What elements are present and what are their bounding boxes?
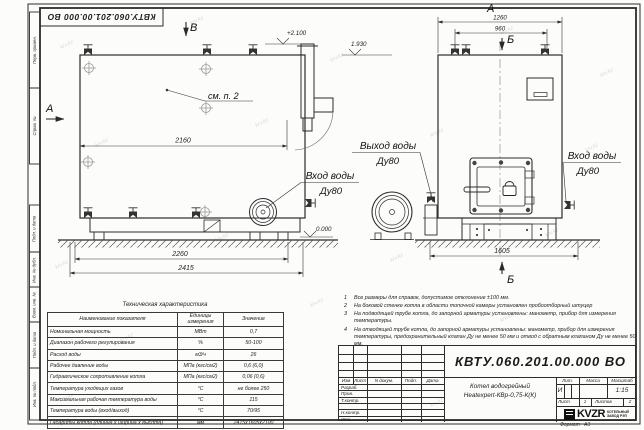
cell: 0,6 (6,0) [224, 360, 284, 371]
cell: 0,7 [224, 327, 284, 338]
elev-1930 [342, 49, 392, 55]
ground-hatch [58, 240, 338, 248]
chimney-elbow [295, 44, 333, 150]
front-inlet-label: Вход воды [568, 151, 617, 162]
margin-label: Инв. № дубл. [30, 252, 40, 287]
cell: Температура воды (вход/выход) [48, 406, 178, 417]
tech-table-title: Техническая характеристика [47, 302, 283, 308]
margin-label: Подп. и дата [30, 205, 40, 252]
scale-label: Масштаб [607, 378, 637, 383]
note-item: 2На боковой стенке котла в области топоч… [344, 303, 636, 310]
section-b2-label-top: Б [507, 34, 514, 46]
center-mark-icon [199, 62, 213, 76]
col-list: Лист [353, 378, 367, 383]
dim-1260-label: 1260 [493, 15, 507, 22]
cell: Номинальная мощность [48, 327, 178, 338]
center-mark-icon [81, 155, 95, 169]
margin-label: Справ. № [30, 88, 40, 164]
valve-icon [305, 199, 315, 208]
tech-table-header-row: Наименование показателя Единицы измерени… [48, 313, 284, 327]
note-number: 1 [344, 295, 354, 302]
table-row: Максимальная рабочая температура воды°С1… [48, 394, 284, 405]
table-row: Номинальная мощностьМВт0,7 [48, 327, 284, 338]
note-text: На подводящей трубе котла, до запорной а… [354, 311, 636, 325]
cell: °С [178, 406, 224, 417]
table-row: Гидравлическое сопротивление котлаМПа (к… [48, 372, 284, 383]
valve-icon [129, 208, 138, 218]
format-note: Формат А3 [560, 422, 590, 428]
row-prov: Пров. [341, 391, 353, 396]
margin-label: Инв. № подл. [30, 368, 40, 420]
door-bolts [472, 160, 530, 212]
cell: Максимальная рабочая температура воды [48, 394, 178, 405]
table-row: Температура уходящих газов°Сне более 250 [48, 383, 284, 394]
valve-icon [192, 208, 201, 218]
valve-icon [541, 45, 550, 55]
tech-header-units: Единицы измерения [178, 313, 224, 327]
ground-hatch [415, 240, 600, 248]
table-row: Температура воды (вход/выход)°С70/95 [48, 406, 284, 417]
dim-2260-label: 2260 [171, 251, 188, 258]
notes-block: 1Все размеры для справок, допустимое отк… [344, 295, 636, 349]
col-podp: Подп. [401, 378, 421, 383]
title-block: КВТУ.060.201.00.000 ВО Изм Лист N докум.… [338, 345, 636, 421]
note-item: 1Все размеры для справок, допустимое отк… [344, 295, 636, 302]
elev-2100-label: +2.100 [287, 30, 307, 37]
cell: °С [178, 394, 224, 405]
see-note-label: см. п. 2 [208, 91, 239, 101]
logo-mark-icon [564, 409, 575, 420]
outlet-size: Ду80 [376, 156, 400, 167]
sheet-value: 1 [579, 399, 591, 404]
lit-label: Лит. [556, 378, 579, 383]
tech-header-name: Наименование показателя [48, 313, 178, 327]
table-row: Габариты котла (длинна х ширина х высота… [48, 417, 284, 428]
valve-icon [84, 208, 93, 218]
center-mark-icon [198, 205, 212, 219]
cell: 70/95 [224, 406, 284, 417]
col-izm: Изм [339, 378, 353, 383]
front-view-a-label: А [486, 3, 494, 15]
doc-number: КВТУ.060.201.00.000 ВО [444, 346, 637, 377]
side-inlet-label: Вход воды [306, 171, 355, 182]
note-number: 2 [344, 303, 354, 310]
dim-2160-label: 2160 [174, 138, 191, 145]
lit-value: И [556, 387, 564, 394]
center-mark-icon [199, 101, 213, 115]
mass-label: Масса [579, 378, 607, 383]
product-name-line2: Heatexpert-КВр-0,75-К(К) [444, 392, 556, 399]
elev-2100 [265, 38, 307, 44]
cell: Расход воды [48, 349, 178, 360]
cell: 2415х1605х2100 [224, 417, 284, 428]
cell: Рабочее давление воды [48, 360, 178, 371]
margin-label: Перв. примен. [30, 12, 40, 88]
product-name-line1: Котел водогрейный [444, 383, 556, 390]
dim-1605-label: 1605 [494, 248, 510, 255]
cell: 50-100 [224, 338, 284, 349]
front-inlet-size: Ду80 [576, 166, 600, 177]
view-a-label-left: А [45, 103, 53, 115]
cell: МПа (кгс/см2) [178, 372, 224, 383]
cell: 115 [224, 394, 284, 405]
sheets-value: 2 [623, 399, 637, 404]
cell: Гидравлическое сопротивление котла [48, 372, 178, 383]
logo-text: KVZR [577, 408, 605, 420]
section-b-label: В [190, 22, 197, 34]
furnace-door [464, 158, 534, 214]
elev-0000-label: 0.000 [316, 226, 332, 233]
margin-label: Подп. и дата [30, 322, 40, 368]
cell: 0,06 (0,6) [224, 372, 284, 383]
row-nkontr: Н.контр. [341, 410, 360, 415]
dim-2415-label: 2415 [177, 265, 194, 272]
cell: 26 [224, 349, 284, 360]
row-tkontr: Т.контр. [341, 398, 360, 403]
cell: % [178, 338, 224, 349]
dim-2160 [80, 120, 287, 150]
side-inlet-size: Ду80 [319, 186, 343, 197]
outlet-label: Выход воды [360, 141, 417, 152]
front-view: 1260 960 А Б Б 1605 Выход воды Ду80 [352, 3, 621, 286]
cell: Диапазон рабочего регулирования [48, 338, 178, 349]
tech-header-value: Значение [224, 313, 284, 327]
front-base [462, 218, 556, 240]
cell: Температура уходящих газов [48, 383, 178, 394]
sheets-label: Листов [595, 399, 612, 404]
elev-1930-label: 1.930 [351, 41, 367, 48]
note-number: 3 [344, 311, 354, 325]
margin-label: Взам. инв. № [30, 287, 40, 322]
cell: °С [178, 383, 224, 394]
side-inlet-leader [266, 183, 359, 209]
tech-table: Наименование показателя Единицы измерени… [47, 312, 284, 429]
logo-caption: КОТЕЛЬНЫЙ ЗАВОД РЭП [607, 410, 629, 418]
note-item: 3На подводящей трубе котла, до запорной … [344, 311, 636, 325]
table-row: Расход водым3/ч26 [48, 349, 284, 360]
valve-icon [203, 45, 212, 55]
valve-icon [564, 201, 574, 210]
sheet-label: Лист [558, 399, 570, 404]
col-data: Дата [421, 378, 444, 383]
cell: мм [178, 417, 224, 428]
table-row: Рабочее давление водыМПа (кгс/см2)0,6 (6… [48, 360, 284, 371]
corner-stamp: КВТУ.060.201.00.000 ВО [40, 8, 163, 26]
valve-icon [84, 45, 93, 55]
col-ndocum: N докум. [367, 378, 401, 383]
valve-icon [462, 45, 471, 55]
cell: МВт [178, 327, 224, 338]
cell: Габариты котла (длинна х ширина х высота… [48, 417, 178, 428]
lock-icon [503, 182, 516, 196]
section-b2-label-bottom: Б [507, 274, 514, 286]
drawing-sheet: krv.kz krv.kz krv.kz krv.kz krv.kz krv.k… [0, 0, 644, 430]
row-razrab: Разраб. [341, 385, 358, 390]
note-text: Все размеры для справок, допустимое откл… [354, 295, 509, 302]
cell: м3/ч [178, 349, 224, 360]
cell: МПа (кгс/см2) [178, 360, 224, 371]
format-label: Формат [560, 422, 580, 428]
format-value: А3 [584, 422, 590, 428]
valve-icon [249, 45, 258, 55]
note-text: На боковой стенке котла в области топочн… [354, 303, 592, 310]
row-utv: Утв. [341, 417, 351, 422]
dim-960-label: 960 [495, 26, 506, 33]
center-mark-icon [82, 61, 96, 75]
logo-caption-line2: ЗАВОД РЭП [607, 414, 629, 418]
scale-value: 1:15 [607, 387, 637, 394]
inlet-flange [250, 199, 277, 226]
cell: не более 250 [224, 383, 284, 394]
table-row: Диапазон рабочего регулирования%50-100 [48, 338, 284, 349]
company-logo: KVZR КОТЕЛЬНЫЙ ЗАВОД РЭП [556, 406, 637, 422]
side-view: 2160 см. п. 2 В А +2.100 1.930 0.000 [45, 22, 392, 277]
control-panel [527, 78, 553, 100]
